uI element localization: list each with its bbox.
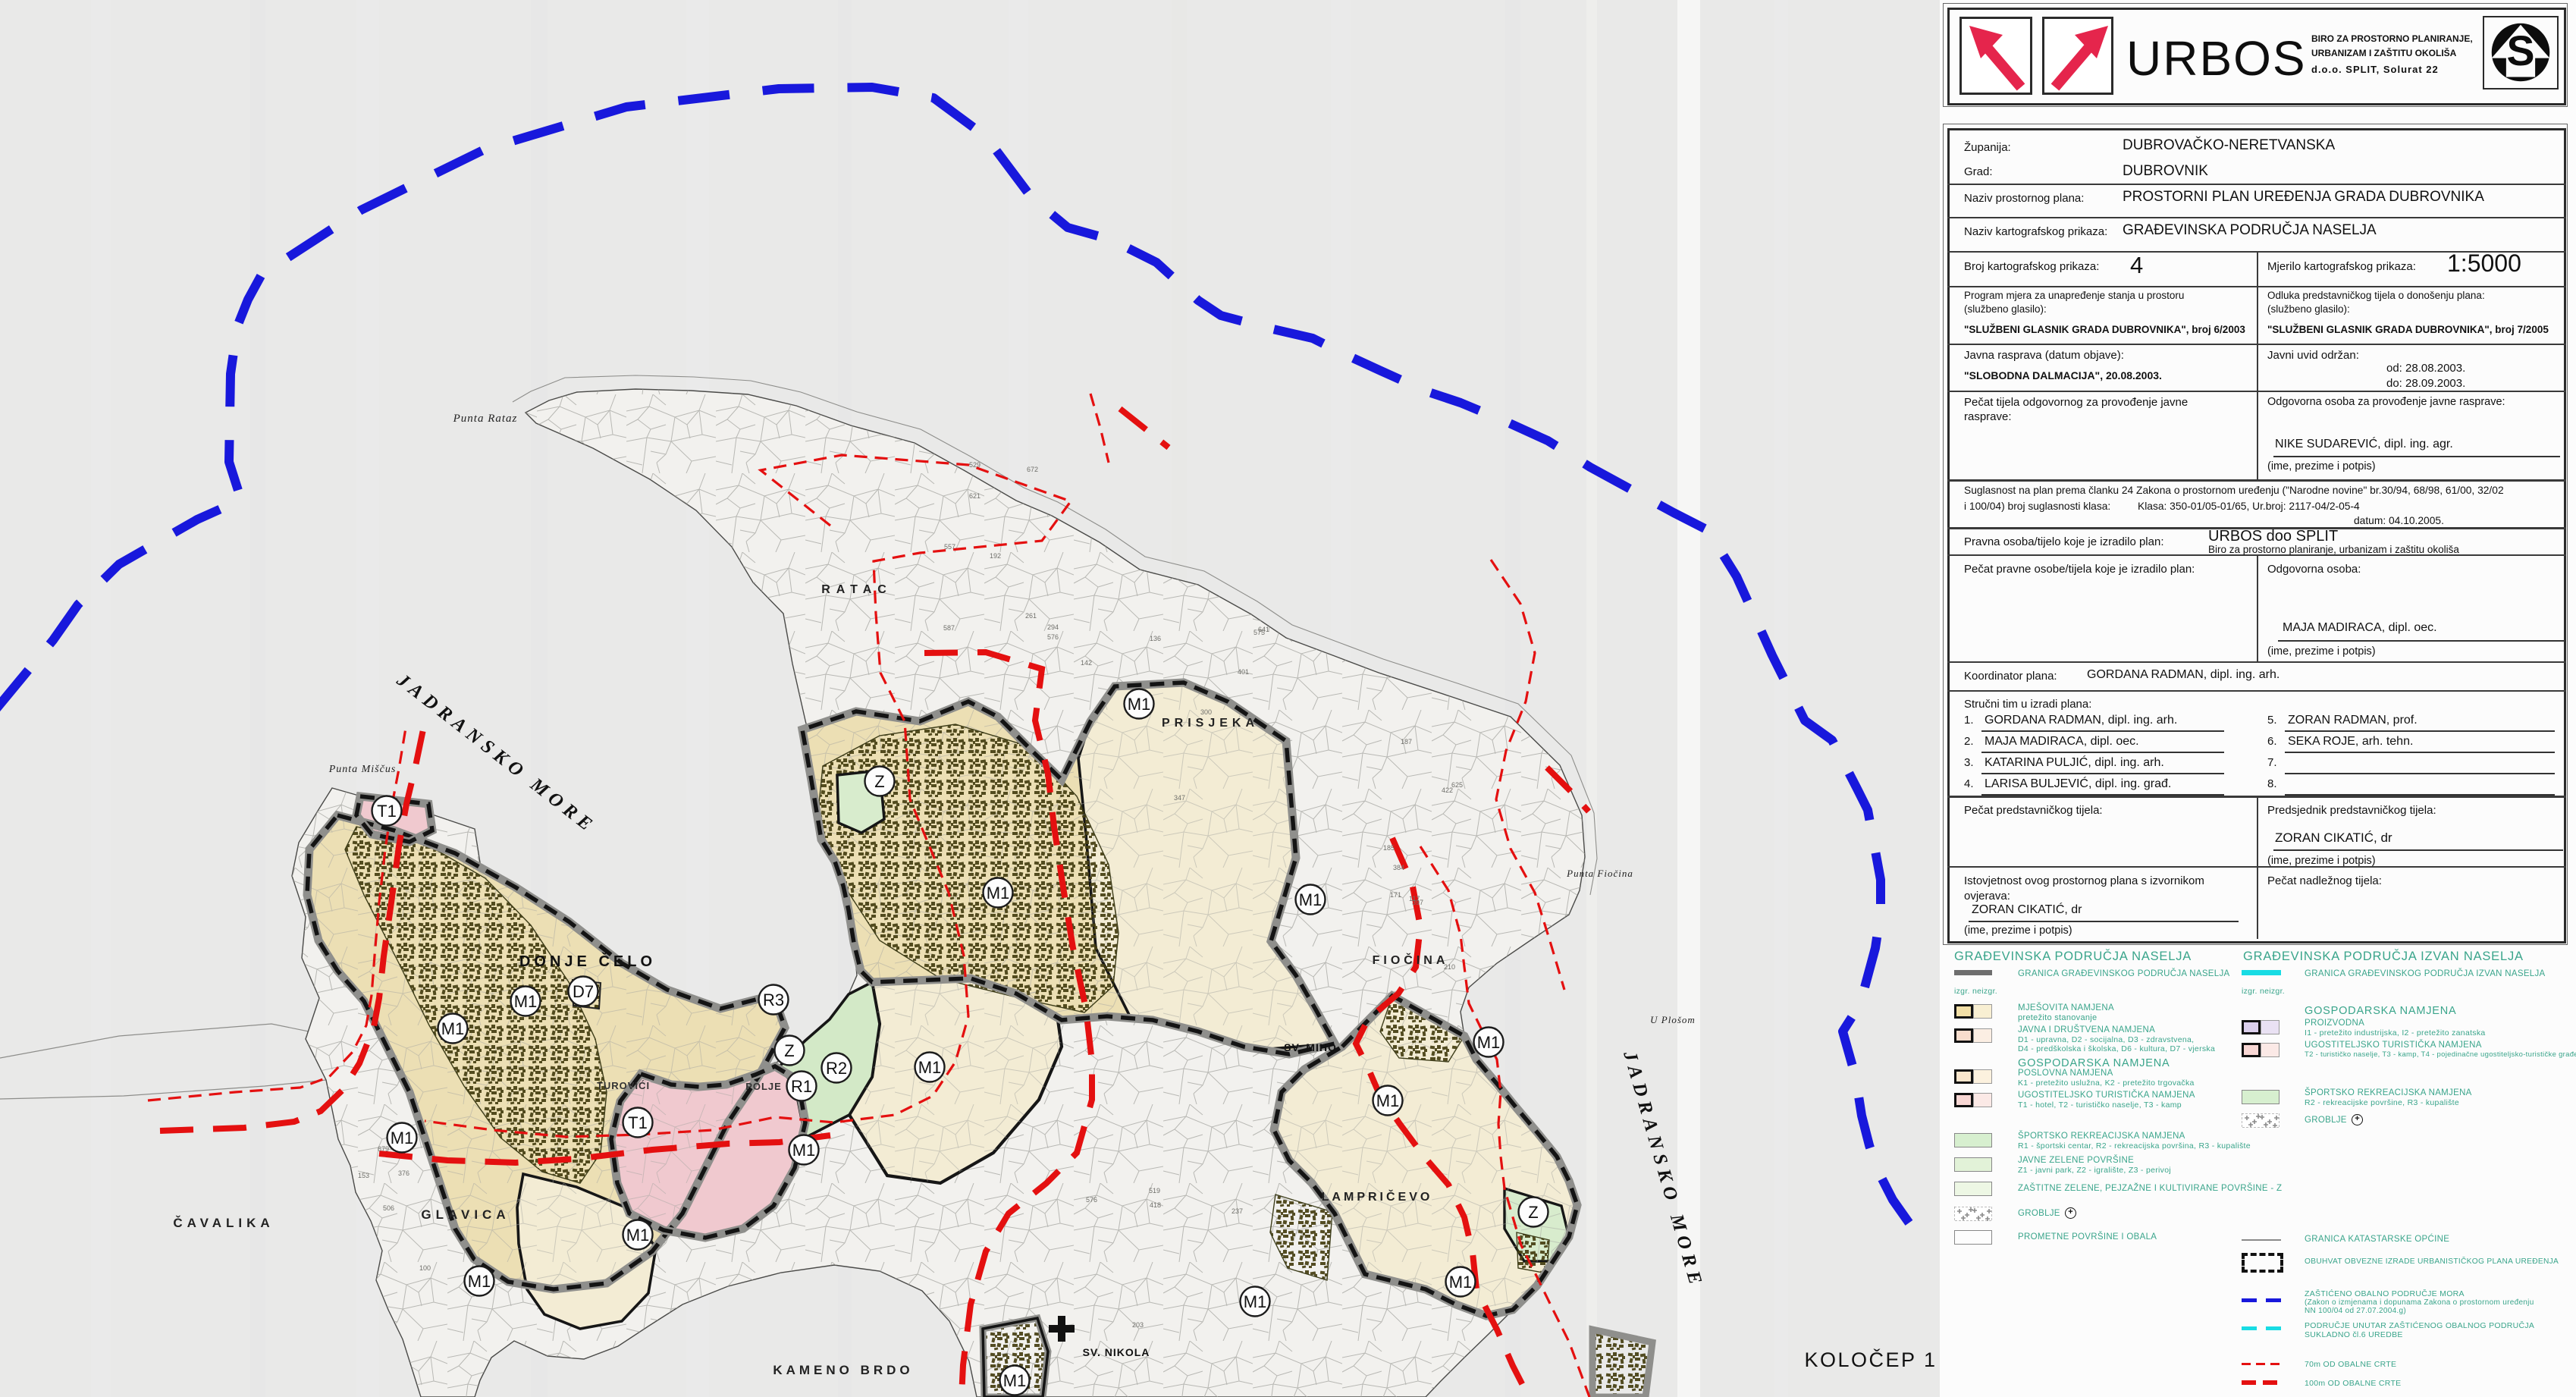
svg-text:237: 237: [1232, 1207, 1243, 1215]
svg-text:M1: M1: [1244, 1292, 1267, 1311]
svg-text:294: 294: [1047, 623, 1059, 631]
svg-text:347: 347: [1174, 794, 1185, 802]
svg-text:T1: T1: [377, 802, 397, 821]
svg-text:M1: M1: [1477, 1033, 1501, 1052]
svg-text:M1: M1: [391, 1129, 414, 1147]
svg-text:T1: T1: [628, 1113, 648, 1132]
svg-text:576: 576: [1047, 633, 1059, 641]
svg-text:ČAVALIKA: ČAVALIKA: [173, 1216, 274, 1230]
svg-text:672: 672: [1027, 466, 1038, 473]
svg-text:506: 506: [383, 1204, 394, 1212]
svg-text:U Plošom: U Plošom: [1650, 1014, 1696, 1025]
svg-text:153: 153: [358, 1172, 369, 1179]
svg-text:KOLOČEP 1: KOLOČEP 1: [1804, 1348, 1937, 1371]
svg-text:401: 401: [1238, 668, 1249, 676]
svg-text:GLAVICA: GLAVICA: [421, 1207, 510, 1222]
svg-text:DONJE ČELO: DONJE ČELO: [519, 952, 656, 970]
svg-text:R1: R1: [791, 1077, 812, 1096]
svg-text:625: 625: [1451, 781, 1463, 789]
svg-text:529: 529: [969, 461, 981, 469]
svg-text:M1: M1: [1003, 1371, 1027, 1390]
svg-text:Punta Fiočina: Punta Fiočina: [1566, 868, 1633, 879]
svg-text:187: 187: [1401, 738, 1412, 746]
svg-text:M1: M1: [1449, 1273, 1473, 1292]
svg-text:Z: Z: [874, 772, 884, 791]
svg-text:300: 300: [1200, 708, 1212, 716]
svg-text:185: 185: [1383, 844, 1395, 852]
svg-text:575: 575: [1253, 629, 1265, 636]
svg-text:R3: R3: [763, 990, 784, 1009]
svg-text:679: 679: [378, 1145, 389, 1153]
svg-text:Z: Z: [1528, 1203, 1538, 1222]
svg-text:576: 576: [1086, 1196, 1097, 1204]
svg-text:621: 621: [969, 492, 981, 500]
svg-text:M1: M1: [468, 1272, 491, 1291]
svg-text:M1: M1: [1128, 695, 1151, 714]
svg-text:SV. NIKOLA: SV. NIKOLA: [1083, 1346, 1150, 1358]
svg-text:TUROVIĆI: TUROVIĆI: [597, 1080, 650, 1091]
svg-text:LAMPRIČEVO: LAMPRIČEVO: [1322, 1189, 1433, 1204]
svg-text:376: 376: [398, 1169, 409, 1177]
svg-text:Punta Rataz: Punta Rataz: [453, 413, 518, 425]
svg-text:RATAC: RATAC: [821, 583, 893, 596]
svg-text:M1: M1: [1376, 1091, 1400, 1110]
svg-text:261: 261: [1025, 612, 1037, 620]
svg-text:192: 192: [990, 552, 1001, 560]
svg-text:POLJE: POLJE: [745, 1081, 782, 1092]
svg-text:M1: M1: [1299, 890, 1323, 909]
svg-text:587: 587: [943, 624, 955, 632]
svg-text:FIOČINA: FIOČINA: [1373, 953, 1449, 967]
svg-text:KAMENO BRDO: KAMENO BRDO: [773, 1363, 913, 1377]
svg-text:418: 418: [1150, 1201, 1161, 1209]
svg-text:557: 557: [944, 543, 955, 551]
svg-text:M1: M1: [987, 884, 1010, 903]
svg-text:M1: M1: [918, 1058, 942, 1077]
svg-text:384: 384: [1393, 864, 1404, 871]
svg-text:117: 117: [1409, 895, 1420, 903]
svg-text:R2: R2: [826, 1059, 847, 1078]
svg-text:Punta Miščus: Punta Miščus: [328, 764, 397, 775]
svg-text:100: 100: [419, 1264, 431, 1272]
svg-text:171: 171: [1390, 891, 1401, 899]
svg-text:PRISJEKA: PRISJEKA: [1162, 717, 1259, 730]
svg-text:S: S: [2507, 27, 2535, 74]
svg-text:M1: M1: [792, 1141, 816, 1160]
svg-text:M1: M1: [514, 992, 538, 1011]
svg-text:Z: Z: [784, 1041, 794, 1060]
svg-text:M1: M1: [626, 1226, 650, 1245]
svg-text:SV. MIHO: SV. MIHO: [1284, 1041, 1337, 1053]
svg-text:D7: D7: [573, 982, 594, 1001]
svg-text:136: 136: [1150, 635, 1161, 642]
svg-text:142: 142: [1081, 659, 1092, 667]
svg-text:519: 519: [1149, 1187, 1160, 1195]
svg-text:203: 203: [1132, 1321, 1144, 1329]
svg-text:M1: M1: [441, 1019, 465, 1038]
